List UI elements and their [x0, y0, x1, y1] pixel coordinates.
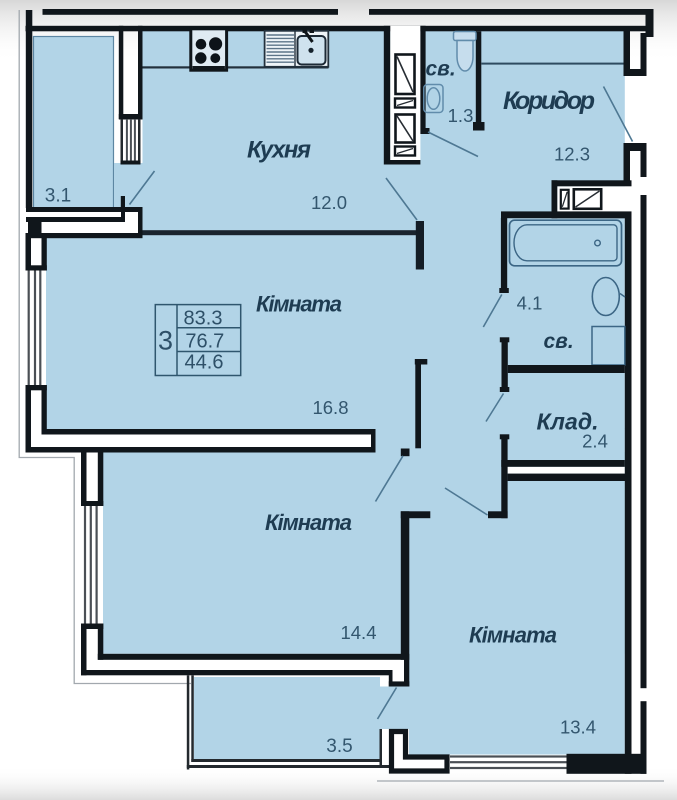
svg-text:3.5: 3.5 — [326, 736, 352, 757]
svg-text:Кімната: Кімната — [256, 292, 342, 317]
svg-text:св.: св. — [544, 330, 574, 353]
svg-text:76.7: 76.7 — [185, 331, 224, 353]
svg-text:12.3: 12.3 — [554, 144, 590, 165]
svg-text:4.1: 4.1 — [517, 293, 543, 314]
svg-text:Кімната: Кімната — [469, 623, 557, 648]
svg-text:3.1: 3.1 — [45, 186, 71, 207]
svg-text:16.8: 16.8 — [312, 397, 348, 418]
svg-text:3: 3 — [158, 326, 173, 356]
svg-text:св.: св. — [426, 58, 456, 81]
svg-text:14.4: 14.4 — [340, 622, 376, 643]
svg-text:Кімната: Кімната — [265, 510, 352, 535]
svg-text:44.6: 44.6 — [185, 351, 224, 373]
svg-text:2.4: 2.4 — [582, 431, 608, 452]
svg-text:Коридор: Коридор — [503, 87, 595, 115]
svg-text:12.0: 12.0 — [311, 192, 347, 213]
svg-text:1.3: 1.3 — [448, 105, 474, 126]
svg-text:Кухня: Кухня — [247, 137, 311, 164]
svg-text:83.3: 83.3 — [184, 308, 223, 330]
svg-text:13.4: 13.4 — [560, 717, 596, 738]
